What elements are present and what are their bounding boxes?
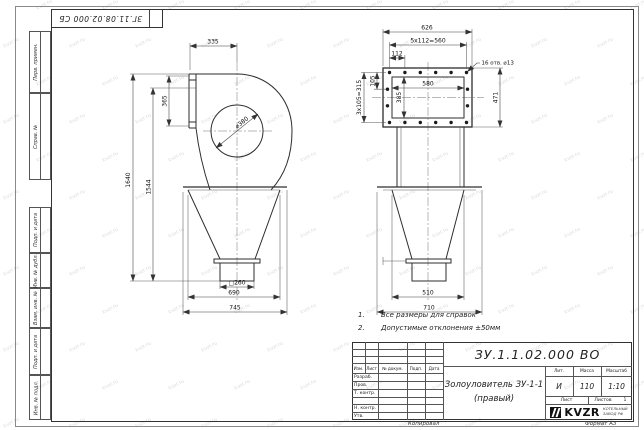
margin-cell-podp-data-1: Подп. и дата — [29, 207, 51, 253]
company-org-name: КОТЕЛЬНЫЙ ЗАВОД РФ — [603, 407, 628, 417]
company-logo-text: KVZR — [564, 406, 599, 419]
note-2-number: 2. — [358, 324, 365, 332]
margin-label: Инв. № дубл. — [33, 253, 39, 287]
mass-label: Масса — [573, 366, 601, 376]
col-izm: Изм. — [352, 363, 365, 373]
margin-label: Подп. и дата — [33, 213, 39, 247]
row-checked: Пров. — [352, 381, 378, 389]
margin-cell-vzam-inv: Взам. инв. № — [29, 288, 51, 328]
company-org-line2: ЗАВОД РФ — [603, 412, 628, 417]
margin-label: Взам. инв. № — [33, 291, 39, 325]
lit-value: И — [545, 376, 573, 396]
sheets-label: Листов — [588, 396, 618, 404]
company-cell: KVZR КОТЕЛЬНЫЙ ЗАВОД РФ — [546, 404, 632, 420]
note-1-number: 1. — [358, 311, 365, 319]
sheets-value: 1 — [618, 396, 632, 404]
row-tcontrol: Т. контр. — [352, 389, 378, 397]
note-2-text: Допустимые отклонения ±50мм — [381, 324, 500, 332]
drawing-sheet: kvzr.rukvzr.rukvzr.rukvzr.rukvzr.rukvzr.… — [0, 0, 644, 430]
document-number: ЗУ.1.1.02.000 ВО — [443, 342, 632, 366]
margin-cell-podp-data-2: Подп. и дата — [29, 328, 51, 375]
row-ncontrol: Н. контр. — [352, 404, 378, 412]
margin-label: Справ. № — [33, 124, 39, 148]
product-name: Золоуловитель ЗУ-1-1 (правый) — [443, 366, 545, 420]
corner-stamp-number: ЗГ.11.08.02.000 СБ — [52, 10, 149, 27]
note-1-text: Все размеры для справок — [381, 311, 476, 319]
margin-cell-inv-dubl: Инв. № дубл. — [29, 253, 51, 288]
lit-label: Лит. — [545, 366, 573, 376]
corner-stamp: ЗГ.11.08.02.000 СБ — [51, 9, 163, 28]
margin-cell-perv-primen: Перв. примен. — [29, 31, 51, 93]
col-date: Дата — [425, 363, 443, 373]
col-doc: № докум. — [378, 363, 407, 373]
row-developed: Разраб. — [352, 373, 378, 381]
margin-label: Инв. № подл. — [33, 380, 39, 415]
margin-label: Подп. и дата — [33, 334, 39, 368]
sheet-label: Лист — [545, 396, 588, 404]
col-list: Лист — [365, 363, 378, 373]
mass-value: 110 — [573, 376, 601, 396]
margin-cell-inv-podl: Инв. № подл. — [29, 375, 51, 420]
copied-label: Копировал — [408, 421, 439, 427]
row-approved: Утв. — [352, 412, 378, 420]
product-name-line2: (правый) — [474, 393, 514, 407]
product-name-line1: Золоуловитель ЗУ-1-1 — [445, 379, 543, 393]
format-label: Формат А3 — [585, 421, 616, 427]
scale-value: 1:10 — [601, 376, 632, 396]
margin-label: Перв. примен. — [33, 43, 39, 81]
scale-label: Масштаб — [601, 366, 632, 376]
company-logo-icon — [550, 407, 561, 418]
col-sign: Подп. — [407, 363, 425, 373]
margin-cell-sprav-no: Справ. № — [29, 93, 51, 180]
